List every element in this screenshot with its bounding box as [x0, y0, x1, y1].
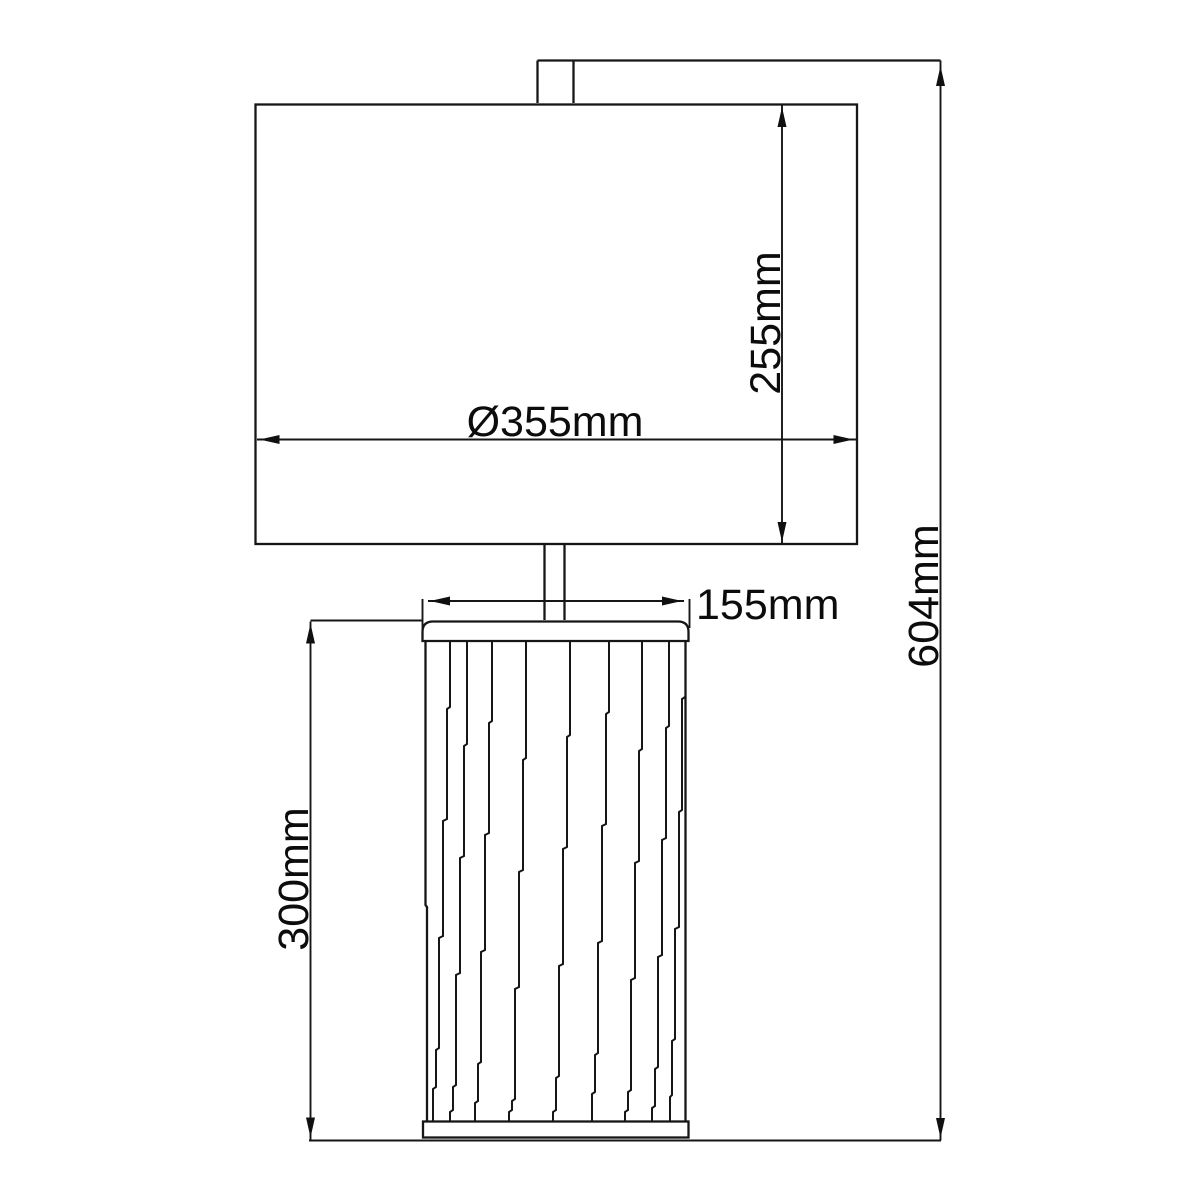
svg-text:604mm: 604mm	[900, 524, 948, 667]
svg-text:255mm: 255mm	[742, 251, 790, 394]
svg-text:300mm: 300mm	[270, 807, 318, 950]
svg-text:155mm: 155mm	[696, 581, 839, 629]
svg-text:Ø355mm: Ø355mm	[467, 398, 644, 446]
